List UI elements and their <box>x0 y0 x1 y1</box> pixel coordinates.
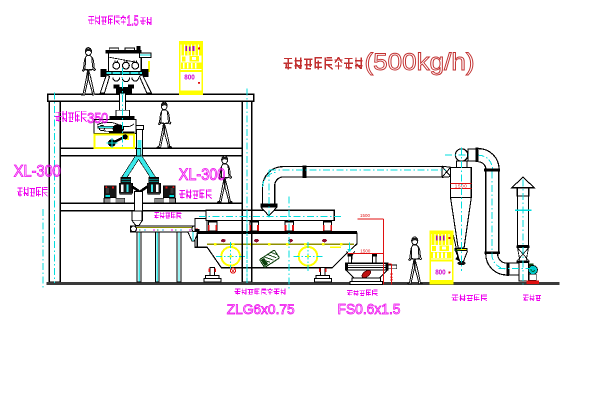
svg-text:1500: 1500 <box>360 248 371 253</box>
svg-text:XL-300: XL-300 <box>179 166 226 184</box>
svg-text:1.5: 1.5 <box>127 14 139 30</box>
svg-text:(500kg/h): (500kg/h) <box>365 49 475 76</box>
svg-text:FS0.6x1.5: FS0.6x1.5 <box>338 301 401 318</box>
svg-text:ZLG6x0.75: ZLG6x0.75 <box>227 301 295 317</box>
svg-text:1500: 1500 <box>360 213 371 218</box>
svg-text:1500: 1500 <box>455 184 467 189</box>
svg-text:545: 545 <box>389 273 394 282</box>
svg-text:800: 800 <box>435 267 446 276</box>
svg-text:350: 350 <box>87 110 108 127</box>
svg-text:XL-300: XL-300 <box>14 162 61 180</box>
svg-text:800: 800 <box>184 73 195 82</box>
